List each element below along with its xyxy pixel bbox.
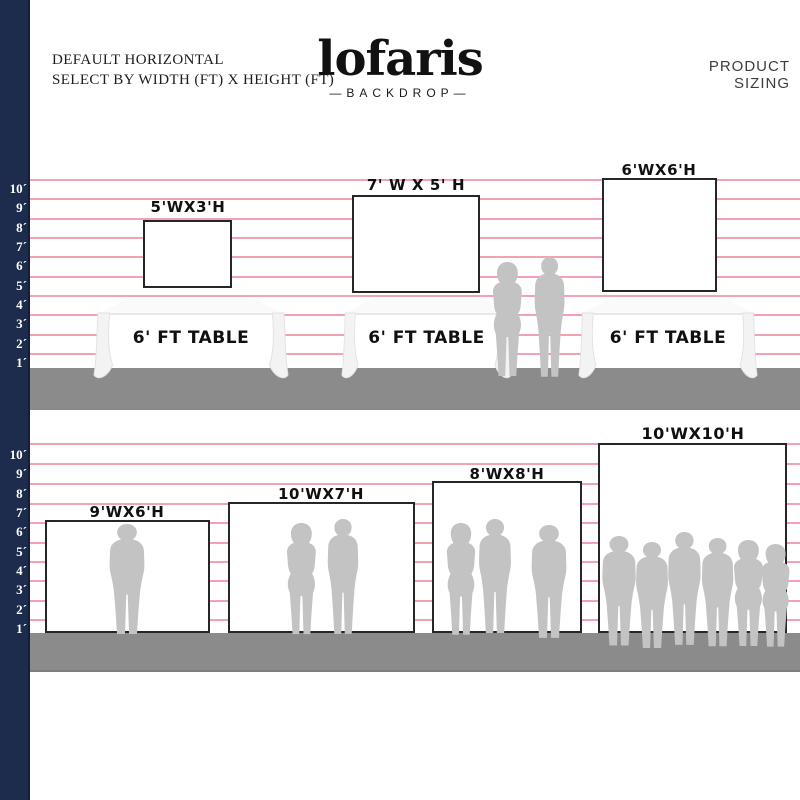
ruler-mark-7ft: 7´ <box>0 239 27 254</box>
brand-name: lofaris <box>300 34 500 84</box>
ruler-mark-3ft: 3´ <box>0 316 27 331</box>
page-title: PRODUCT SIZING <box>650 58 790 92</box>
silhouette-couple <box>281 519 363 636</box>
backdrop-5x3 <box>143 220 232 288</box>
brand-logo: lofaris —BACKDROP— <box>300 34 500 100</box>
ruler-mark-2ft: 2´ <box>0 336 27 351</box>
header-line2: SELECT BY WIDTH (FT) X HEIGHT (FT) <box>52 70 334 90</box>
ruler-mark-9ft: 9´ <box>0 466 27 481</box>
silhouette-single-man <box>101 524 153 636</box>
ruler-mark-4ft: 4´ <box>0 563 27 578</box>
ruler-mark-5ft: 5´ <box>0 544 27 559</box>
backdrop-label-10x10: 10'WX10'H <box>613 426 773 442</box>
ruler-mark-1ft: 1´ <box>0 355 27 370</box>
gridline <box>30 295 800 297</box>
ruler-mark-5ft: 5´ <box>0 278 27 293</box>
ruler-mark-8ft: 8´ <box>0 220 27 235</box>
ruler-mark-10ft: 10´ <box>0 447 27 462</box>
backdrop-label-6x6: 6'WX6'H <box>584 162 734 178</box>
ruler-mark-4ft: 4´ <box>0 297 27 312</box>
ruler-mark-8ft: 8´ <box>0 486 27 501</box>
backdrop-label-9x6: 9'WX6'H <box>62 504 192 520</box>
ruler-mark-6ft: 6´ <box>0 258 27 273</box>
ruler-mark-9ft: 9´ <box>0 200 27 215</box>
backdrop-7x5 <box>352 195 480 293</box>
backdrop-label-8x8: 8'WX8'H <box>437 466 577 482</box>
silhouette-trio <box>441 519 573 641</box>
backdrop-6x6 <box>602 178 717 292</box>
header-line1: DEFAULT HORIZONTAL <box>52 50 334 70</box>
backdrop-label-5x3: 5'WX3'H <box>123 199 253 215</box>
ruler-mark-10ft: 10´ <box>0 181 27 196</box>
silhouette-couple-standing <box>486 255 570 378</box>
table-3-label: 6' FT TABLE <box>578 328 758 348</box>
ruler-mark-7ft: 7´ <box>0 505 27 520</box>
ruler-mark-2ft: 2´ <box>0 602 27 617</box>
ruler-mark-3ft: 3´ <box>0 582 27 597</box>
silhouette-group-of-six <box>596 528 790 650</box>
header-instructions: DEFAULT HORIZONTAL SELECT BY WIDTH (FT) … <box>52 50 334 90</box>
product-sizing-chart: 10´ 9´ 8´ 7´ 6´ 5´ 4´ 3´ 2´ 1´ 10´ 9´ 8´… <box>0 0 800 800</box>
brand-subtitle: —BACKDROP— <box>300 86 500 100</box>
ruler-mark-6ft: 6´ <box>0 524 27 539</box>
backdrop-label-10x7: 10'WX7'H <box>251 486 391 502</box>
ruler-mark-1ft: 1´ <box>0 621 27 636</box>
table-1-label: 6' FT TABLE <box>93 328 289 348</box>
ruler-bar <box>0 0 30 800</box>
backdrop-label-7x5: 7' W X 5' H <box>336 177 496 193</box>
